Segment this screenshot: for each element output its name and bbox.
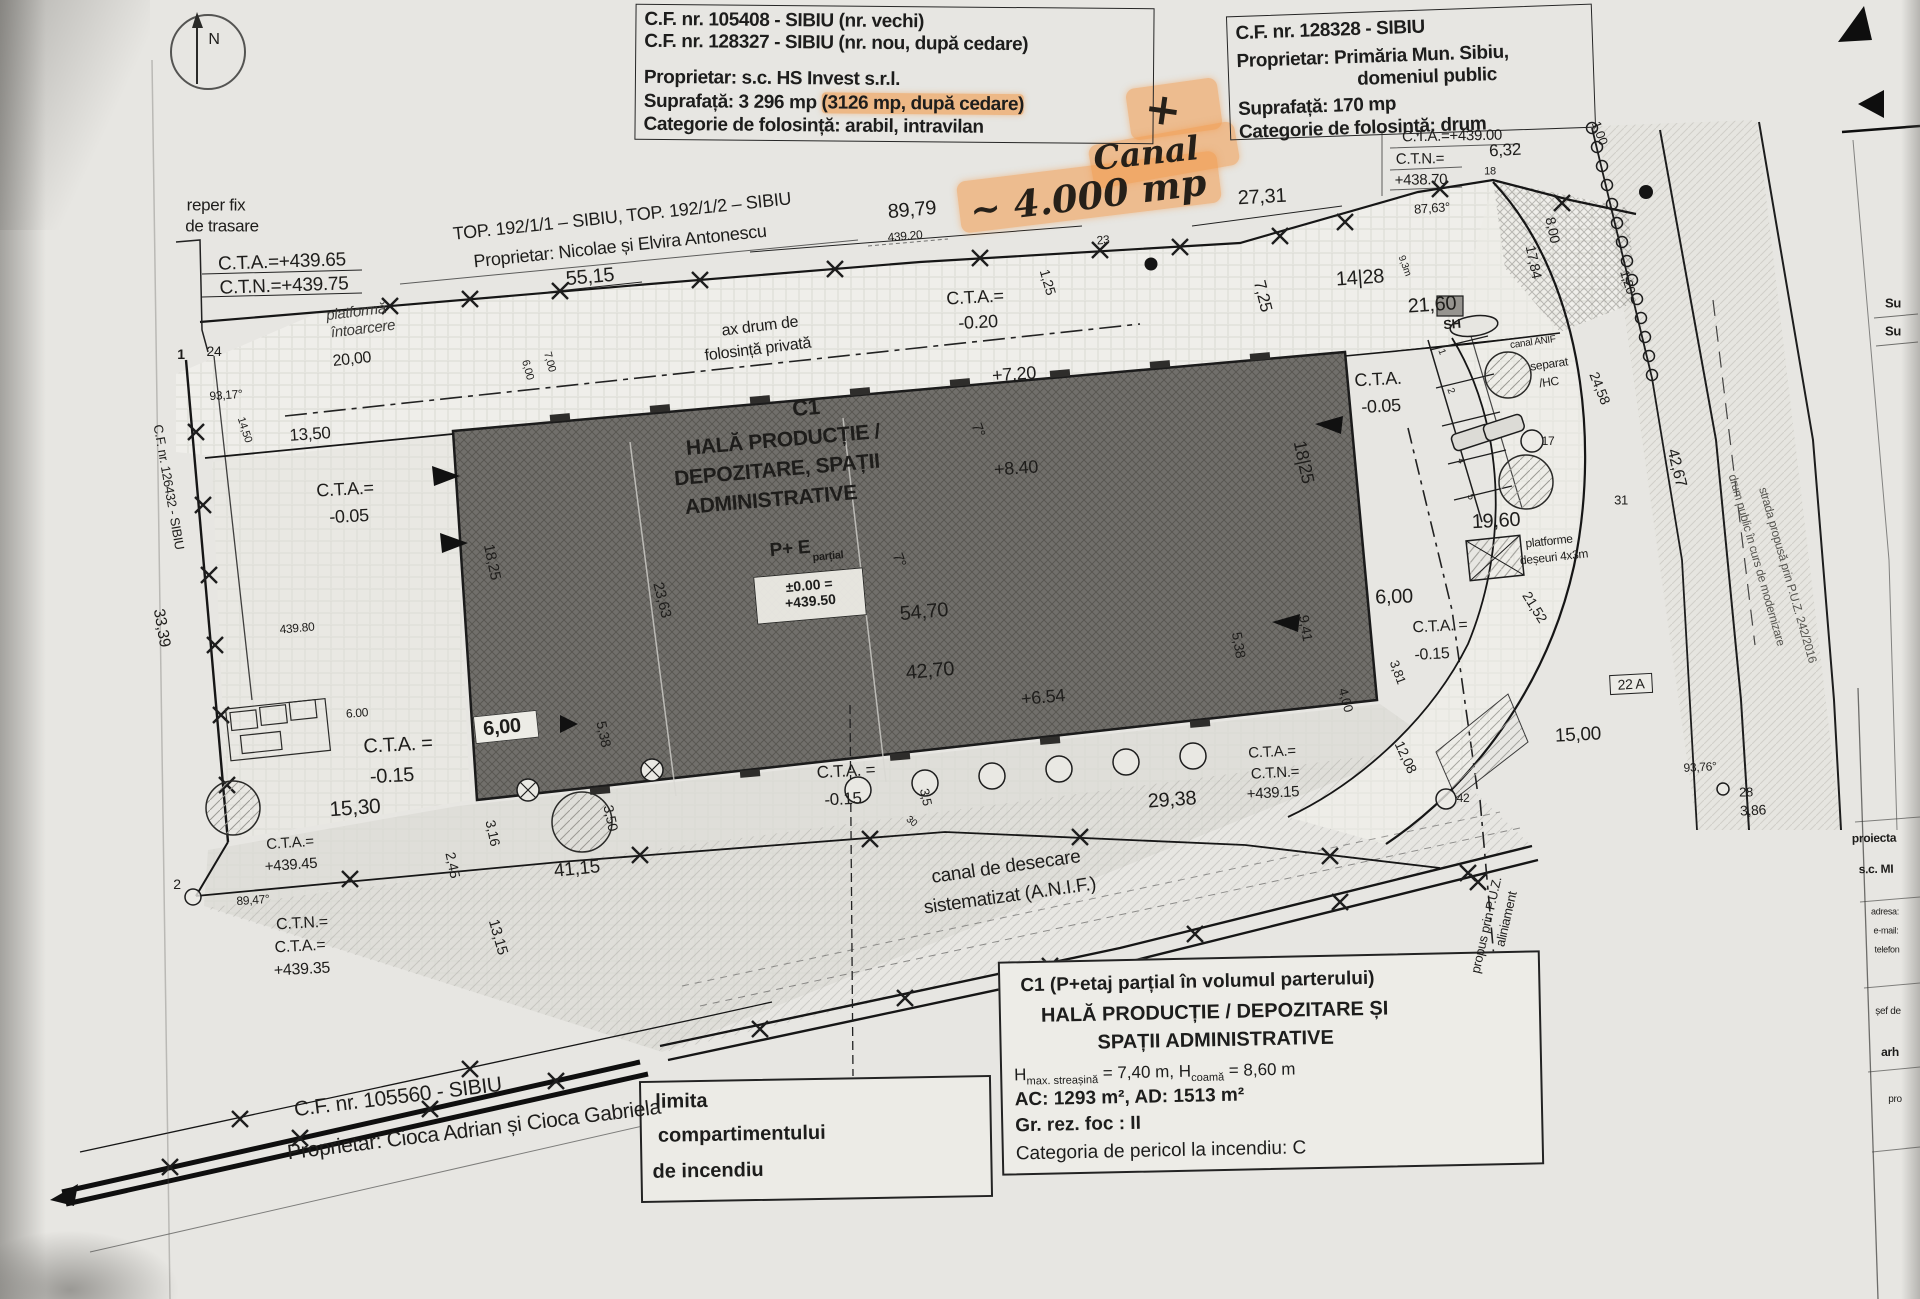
cf-number: C.F. nr. 128328 - SIBIU xyxy=(1235,16,1425,45)
plan-label: C1 xyxy=(791,396,820,420)
plan-label: 21,60 xyxy=(1407,293,1457,316)
plan-label: 17 xyxy=(1542,435,1555,447)
site-plan-scan: C.F. nr. 105408 - SIBIU (nr. vechi) C.F.… xyxy=(0,0,1920,1299)
land-use-line: Categorie de folosință: arabil, intravil… xyxy=(643,114,983,139)
c1-fire-category: Categoria de pericol la incendiu: C xyxy=(1016,1137,1307,1165)
plan-label: 87,63° xyxy=(1414,200,1451,215)
c1-title: C1 (P+etaj parțial în volumul parterului… xyxy=(1020,968,1375,997)
plan-label: 29,38 xyxy=(1147,788,1197,811)
plan-label: 14|28 xyxy=(1335,266,1384,289)
plan-label: +439.35 xyxy=(274,961,331,980)
plan-label: 42,70 xyxy=(905,659,955,683)
plan-label: C.T.A.= xyxy=(266,834,314,852)
plan-label: Su xyxy=(1885,325,1901,338)
plan-label: C.T.N.=+439.75 xyxy=(219,274,348,297)
plan-label: 28 xyxy=(1739,786,1753,799)
plan-label: C.T.A.= xyxy=(1248,743,1296,760)
h-sub-2: coamă xyxy=(1191,1071,1224,1084)
plan-label: +439.45 xyxy=(264,856,317,875)
plan-label: C.T.A. = xyxy=(363,733,433,757)
plan-label: reper fix xyxy=(187,197,246,214)
plan-label: /HC xyxy=(1538,375,1559,390)
c1-info-box: C1 (P+etaj parțial în volumul parterului… xyxy=(998,950,1544,1175)
plan-label: 2 xyxy=(173,877,181,891)
plan-label: -0.15 xyxy=(369,765,414,787)
fire-compartment-box: limita compartimentului de incendiu xyxy=(639,1075,993,1203)
plan-label: C.T.A.= xyxy=(274,938,326,957)
plan-label: 27,31 xyxy=(1237,186,1287,209)
area-line: Suprafață: 3 296 mp (3126 mp, după cedar… xyxy=(644,91,1024,116)
cf-primaria-block: C.F. nr. 128328 - SIBIU Proprietar: Prim… xyxy=(1226,4,1596,141)
plan-label: 1 xyxy=(177,347,185,361)
limita-line1: limita xyxy=(655,1090,708,1114)
h-symbol: H xyxy=(1014,1065,1027,1084)
plan-label: 54,70 xyxy=(899,600,949,624)
cf-hs-invest-block: C.F. nr. 105408 - SIBIU (nr. vechi) C.F.… xyxy=(634,4,1154,145)
plan-label: 6,32 xyxy=(1489,141,1522,160)
plan-label: +439.15 xyxy=(1246,784,1299,802)
plan-label: +6.54 xyxy=(1020,686,1065,708)
plan-label: P+ E xyxy=(769,538,811,560)
plan-label: C.T.A.=+439.00 xyxy=(1402,128,1502,145)
plan-label: 24 xyxy=(207,344,222,358)
c1-fire-grade: Gr. rez. foc : II xyxy=(1015,1113,1141,1138)
cf-new-number: C.F. nr. 128327 - SIBIU (nr. nou, după c… xyxy=(644,31,1028,56)
north-arrow-icon xyxy=(171,12,245,89)
plan-label: 55,15 xyxy=(565,265,615,289)
plan-label: 439.20 xyxy=(887,229,923,244)
plan-label: 18 xyxy=(1484,167,1496,178)
h-sub-1: max. streașină xyxy=(1026,1074,1098,1087)
plan-label: SH xyxy=(1443,317,1462,331)
title-block-ruling xyxy=(1855,314,1920,1299)
plan-label: 9,41 xyxy=(1297,614,1315,642)
plan-label: șef de xyxy=(1875,1007,1900,1017)
plan-label: Su xyxy=(1885,297,1901,310)
plan-label: +7.20 xyxy=(991,363,1036,384)
area-after-cedare: (3126 mp, după cedare) xyxy=(822,92,1025,115)
plan-label: 23 xyxy=(1096,233,1110,246)
plan-label: C.T.A. xyxy=(1354,369,1402,389)
plan-label: -0.15 xyxy=(824,790,862,809)
plan-label: adresa: xyxy=(1871,908,1899,917)
plan-label: arh xyxy=(1881,1046,1899,1058)
print-marks xyxy=(1838,6,1920,132)
plan-label: +438.70 xyxy=(1395,172,1448,188)
plan-label: C.T.N.= xyxy=(1396,151,1445,167)
plan-label: 93,76° xyxy=(1683,760,1717,774)
plan-label: 13,50 xyxy=(289,424,331,444)
north-label: N xyxy=(208,32,219,48)
plan-label: 6,00 xyxy=(1375,586,1413,607)
limita-line3: de incendiu xyxy=(652,1159,764,1184)
plan-label: 89,47° xyxy=(236,893,270,907)
plan-label: 15,30 xyxy=(329,796,381,821)
plan-label: 42 xyxy=(1457,792,1470,804)
plan-label: C.T.N.= xyxy=(1250,764,1299,782)
plan-label: -0.05 xyxy=(1361,396,1401,416)
plan-label: C.T.A. = xyxy=(816,761,875,781)
c1-function-2: SPAȚII ADMINISTRATIVE xyxy=(1097,1027,1334,1055)
plan-label: -0.15 xyxy=(1414,646,1450,664)
area-value: Suprafață: 3 296 mp xyxy=(644,91,822,114)
plan-label: 3,86 xyxy=(1740,802,1767,817)
plan-label: C.T.A. = xyxy=(1412,618,1468,637)
plan-label: 3,5 xyxy=(918,787,934,806)
plan-label: telefon xyxy=(1875,946,1900,955)
owner-line: Proprietar: s.c. HS Invest s.r.l. xyxy=(644,67,900,91)
plan-label: 5,38 xyxy=(1230,631,1248,659)
plan-label: 89,79 xyxy=(887,198,937,222)
h-end: = 8,60 m xyxy=(1224,1059,1296,1079)
limita-line2: compartimentului xyxy=(658,1122,826,1148)
cf-old-number: C.F. nr. 105408 - SIBIU (nr. vechi) xyxy=(644,9,924,33)
h-mid: = 7,40 m, H xyxy=(1098,1062,1191,1083)
c1-function: HALĂ PRODUCȚIE / DEPOZITARE ȘI xyxy=(1041,998,1389,1028)
plan-label: pro xyxy=(1888,1095,1902,1105)
plan-label: -0.20 xyxy=(958,312,998,332)
plan-label: 41,15 xyxy=(553,857,601,881)
plan-label: 439.80 xyxy=(279,621,315,636)
plan-label: proiecta xyxy=(1852,832,1896,845)
plan-label: C.T.N.= xyxy=(276,915,328,934)
plan-label: 22 A xyxy=(1609,673,1653,695)
plan-label: C.T.A.=+439.65 xyxy=(218,250,346,273)
plan-label: C.T.A.= xyxy=(316,479,374,500)
plan-label: C.T.A.= xyxy=(946,287,1004,308)
plan-label: -0.05 xyxy=(329,506,369,526)
plan-label: 6.00 xyxy=(346,706,369,720)
owner-line-2: domeniul public xyxy=(1357,64,1497,91)
plan-label: 19,60 xyxy=(1471,510,1521,533)
plan-label: +8.40 xyxy=(993,457,1038,478)
plan-label: 31 xyxy=(1614,494,1628,507)
plan-label: s.c. MI xyxy=(1859,863,1894,876)
plan-label: e-mail: xyxy=(1874,927,1899,936)
plan-label: 93,17° xyxy=(209,388,243,402)
c1-heights: Hmax. streașină = 7,40 m, Hcoamă = 8,60 … xyxy=(1014,1059,1296,1087)
plan-label: de trasare xyxy=(185,218,259,235)
c1-areas: AC: 1293 m², AD: 1513 m² xyxy=(1014,1085,1244,1112)
plan-label: 15,00 xyxy=(1555,724,1602,745)
level-zero-box: ±0.00 = +439.50 xyxy=(753,567,867,624)
